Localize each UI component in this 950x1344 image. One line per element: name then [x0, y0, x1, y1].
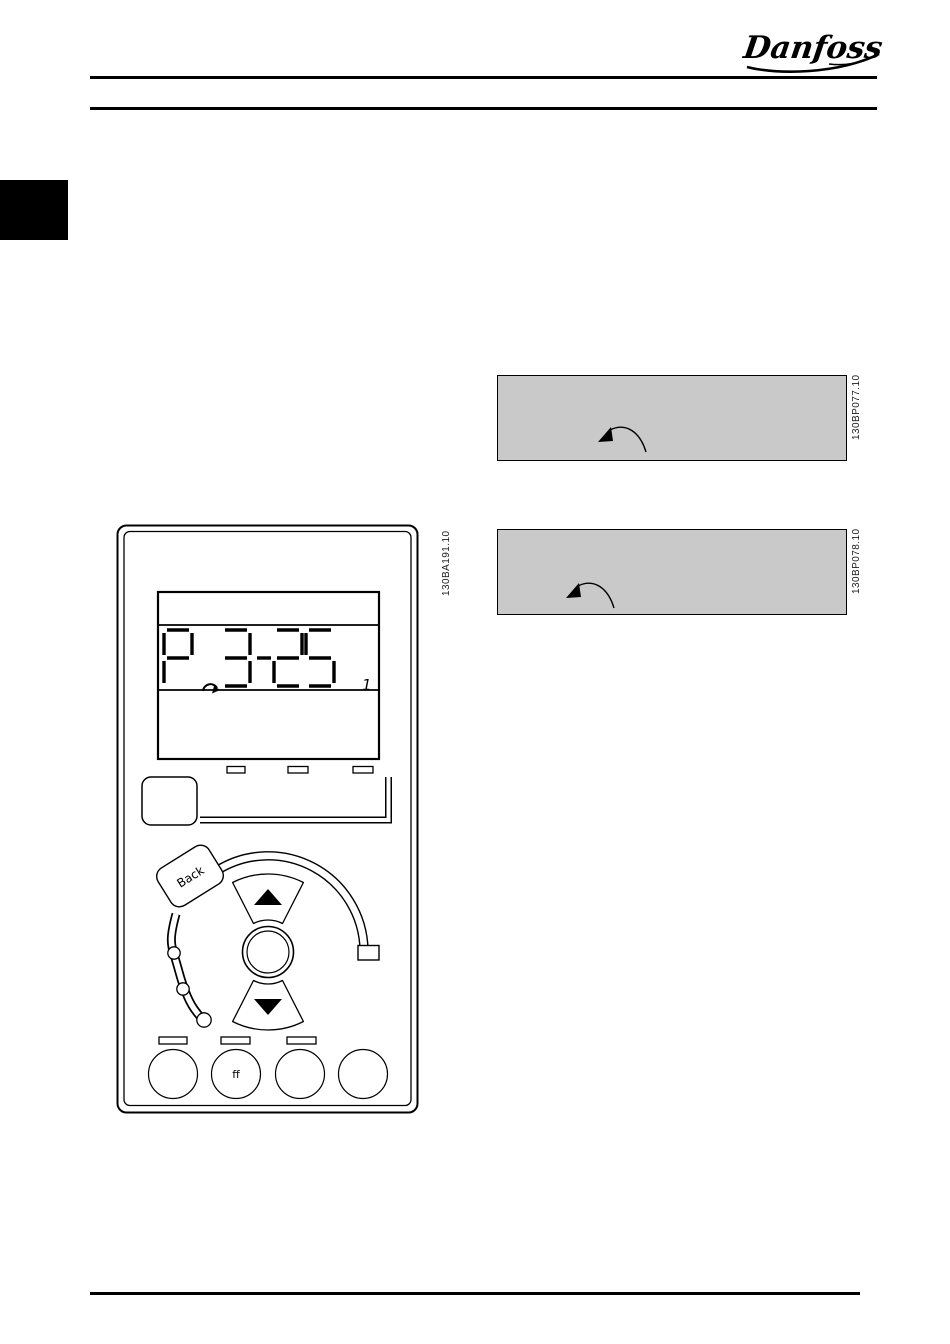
chapter-side-tab — [0, 180, 68, 240]
manual-page: { "brand": { "logo_text": "Danfoss" }, "… — [0, 0, 950, 1344]
status-led-window-1 — [227, 767, 245, 774]
ok-wheel-button — [243, 927, 294, 978]
footer-rule — [90, 1292, 860, 1295]
auto-on-button — [276, 1050, 325, 1099]
status-led-window-2 — [288, 767, 308, 774]
menu-key — [142, 777, 197, 825]
lcp-figure: 1 Back — [90, 515, 470, 1127]
header-rule-bottom — [90, 107, 877, 110]
danfoss-logo: Danfoss — [733, 20, 888, 78]
ccw-arrow-icon — [562, 576, 622, 616]
lcp-display — [158, 592, 379, 759]
setup-indicator: 1 — [362, 676, 372, 694]
example2-figure-id: 130BP078.10 — [851, 522, 862, 594]
display-example-box-2 — [497, 529, 847, 615]
operation-led-window-2 — [221, 1037, 250, 1044]
hand-on-button — [149, 1050, 198, 1099]
example1-figure-id: 130BP077.10 — [851, 368, 862, 440]
arc-end-cap — [358, 946, 379, 961]
ccw-arrow-icon — [594, 420, 654, 460]
lcp-figure-id: 130BA191.10 — [441, 514, 452, 596]
operation-led-window-3 — [287, 1037, 316, 1044]
off-button-label: ff — [232, 1068, 240, 1081]
operation-led-window-1 — [159, 1037, 187, 1044]
status-led-window-3 — [353, 767, 373, 774]
display-example-box-1 — [497, 375, 847, 461]
header-rule-top — [90, 76, 877, 79]
reset-button — [339, 1050, 388, 1099]
